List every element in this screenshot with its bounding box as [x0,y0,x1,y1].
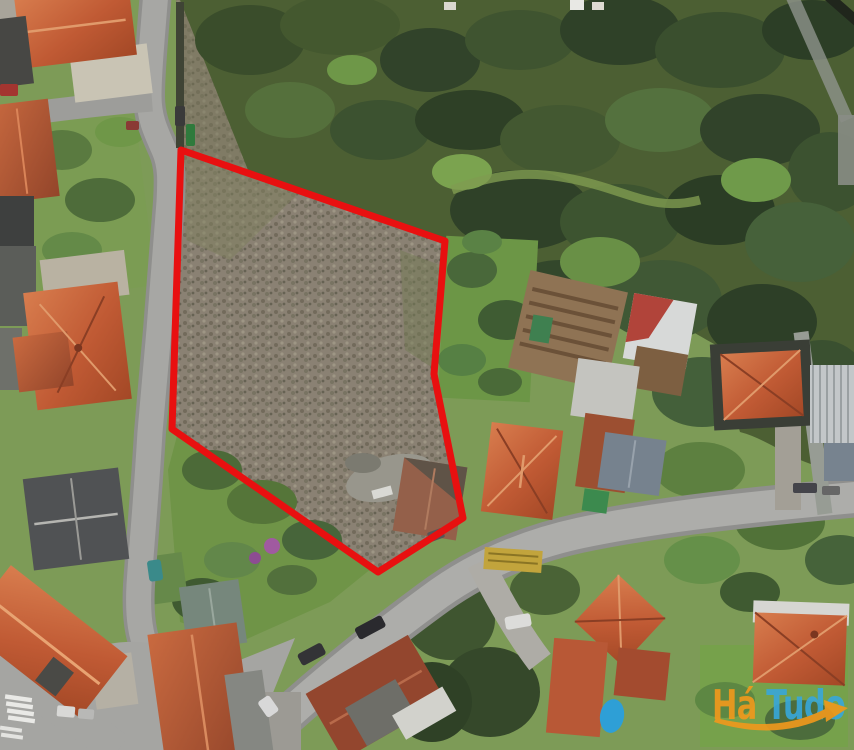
van-dark [175,106,185,126]
building-roof-bluegray [597,432,666,496]
car [126,121,139,130]
building-roof-light [570,358,639,424]
building-roof-terracotta [481,422,563,520]
white-object [570,0,584,10]
satellite-photo-canvas: Há Tudo [0,0,854,750]
flower-bush [264,538,280,554]
building-roof-terracotta [546,638,608,737]
building-roof-dark-large [23,467,129,570]
white-object [592,2,604,10]
building-roof-corrugated [810,365,854,443]
building-roof-terracotta-hip [751,600,850,685]
car [147,559,164,582]
building-roof-terracotta-hip [710,339,814,430]
green-tarp [582,488,610,513]
car [793,483,817,493]
car [78,708,95,719]
car [57,705,76,718]
flower-bush [249,552,261,564]
white-object [444,2,456,10]
building-wall-strip [838,115,854,185]
hatudo-watermark: Há Tudo [712,681,848,730]
satellite-photo: Há Tudo [0,0,854,750]
building-roof-dark [0,196,34,248]
building-roof-bluegray [824,443,854,481]
bus-green [186,124,195,146]
car [0,84,18,96]
building-roof-terracotta [614,647,671,700]
awning-yellow [483,547,542,573]
car [822,486,840,495]
